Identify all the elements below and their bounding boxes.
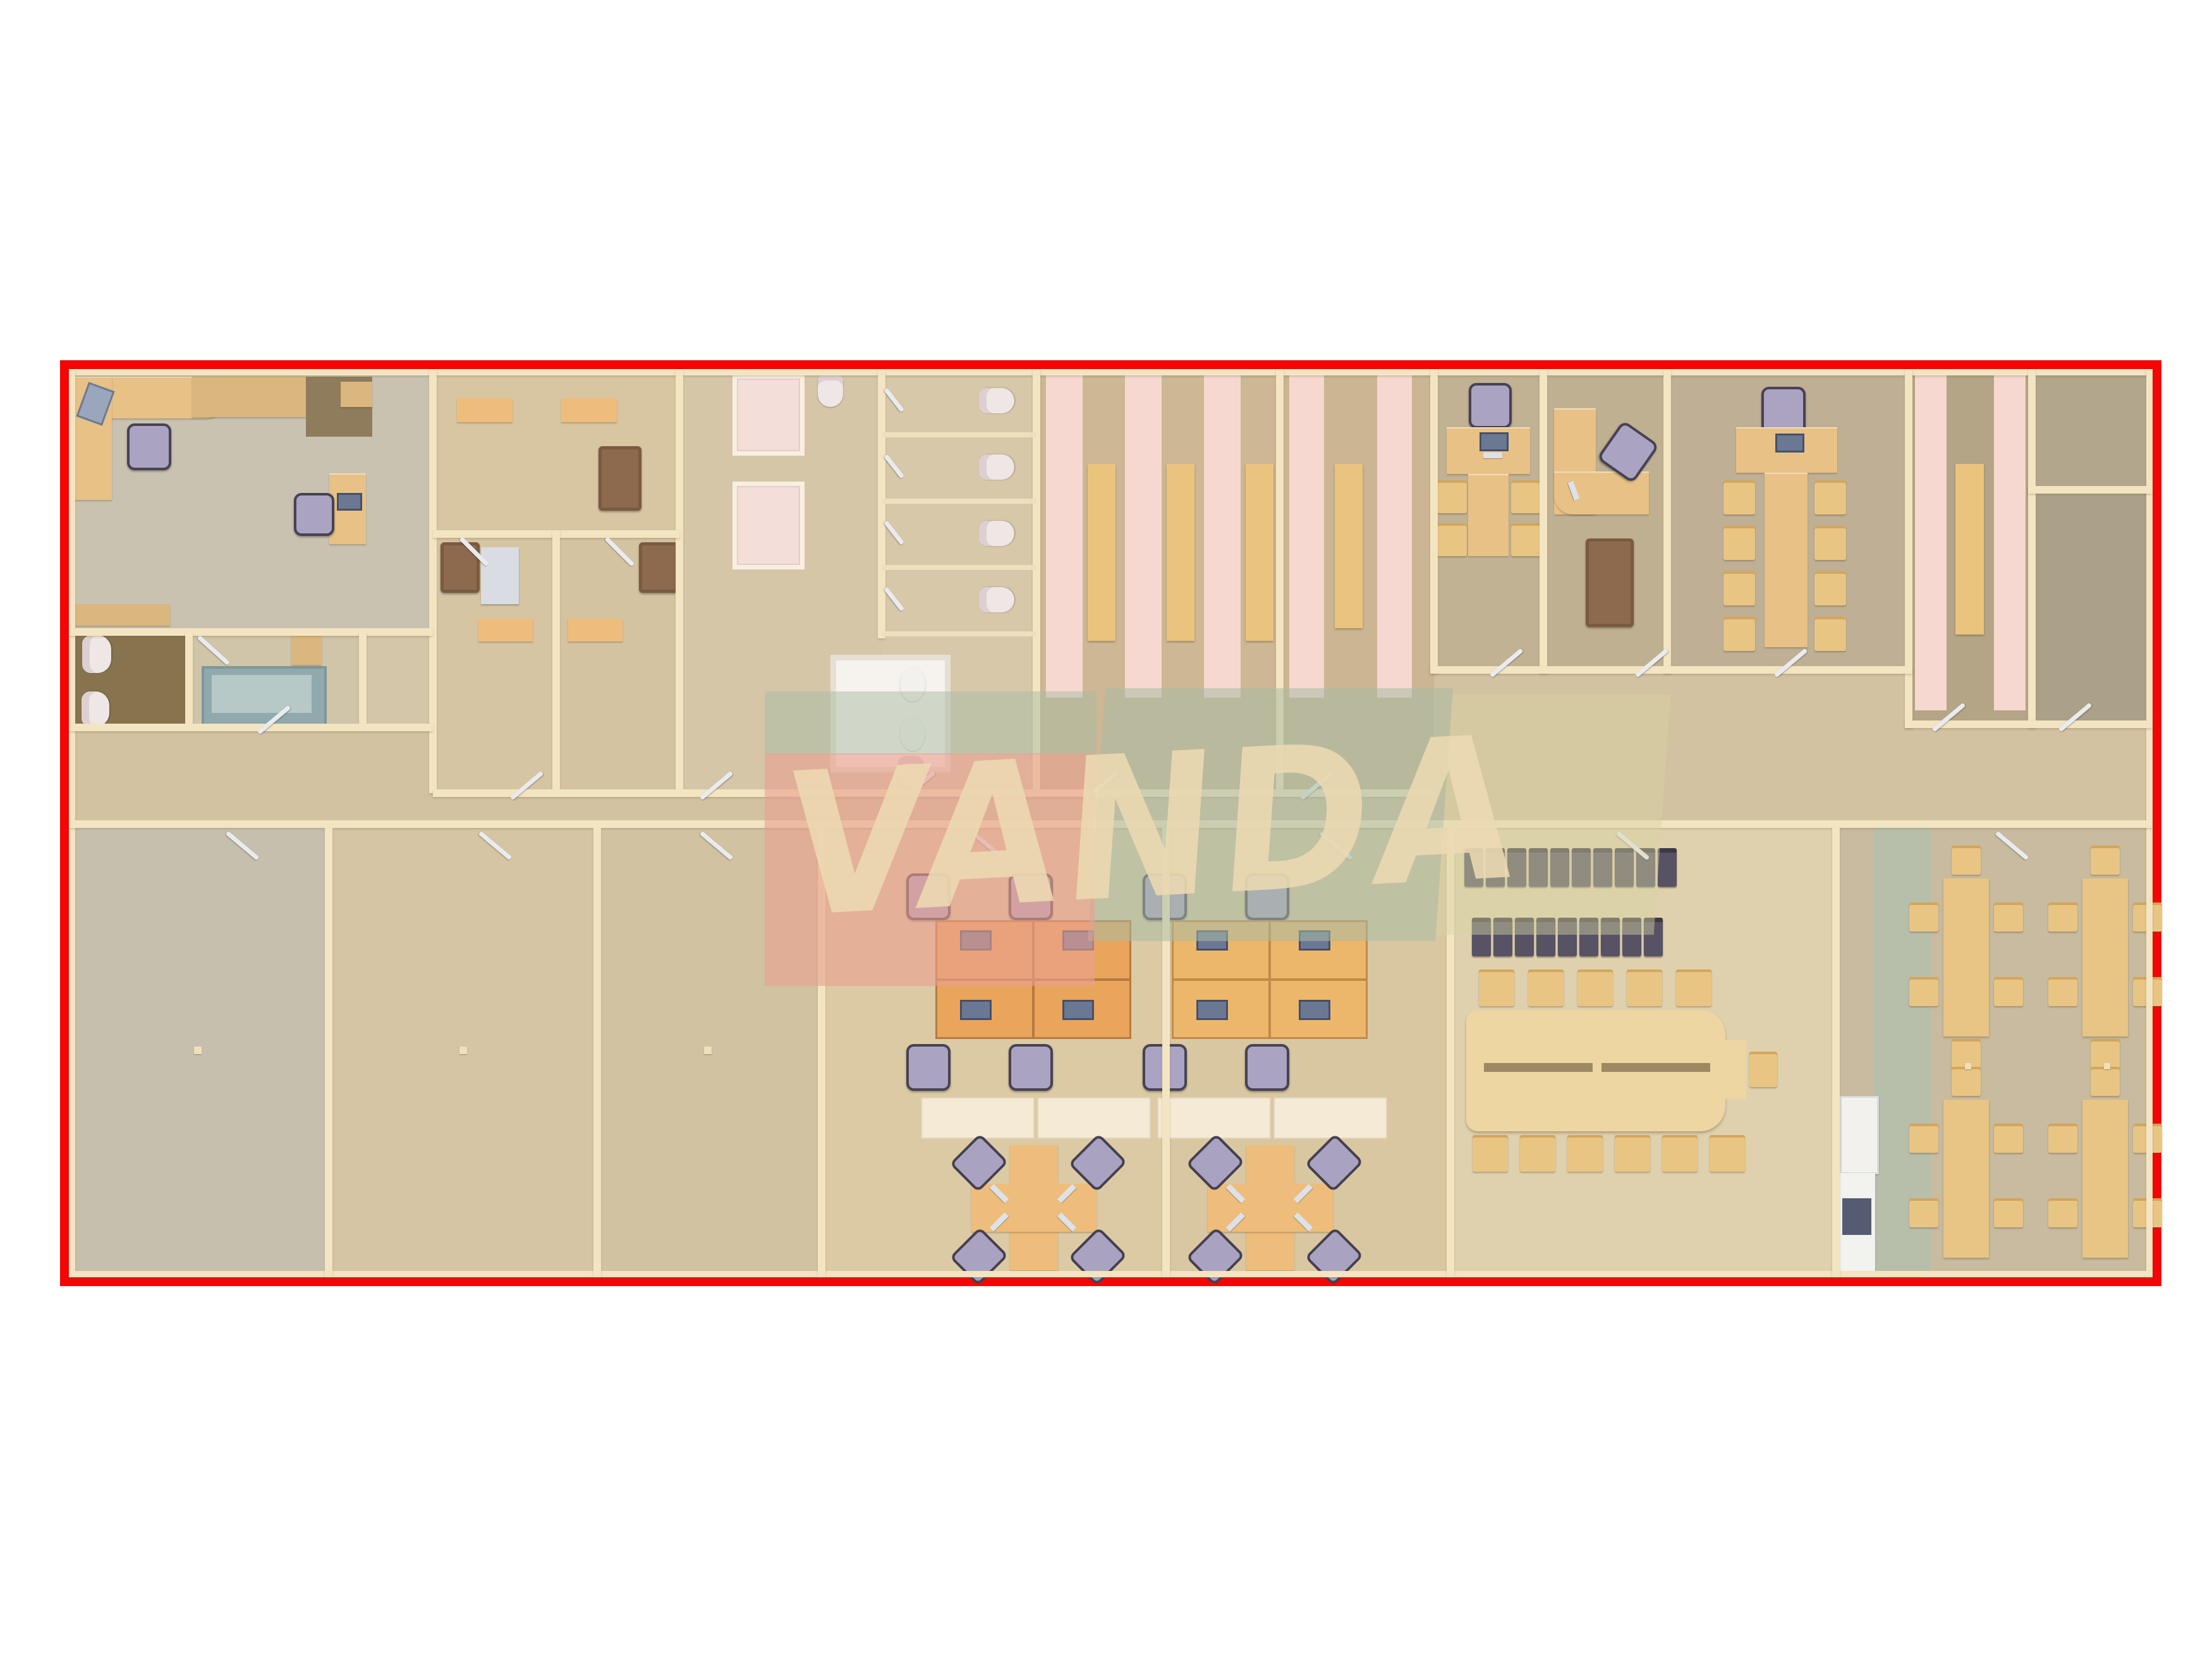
- oo1-credenza-1: [921, 1097, 1035, 1139]
- training-row1-chair: [1550, 848, 1569, 887]
- stall-divider-1: [882, 432, 1036, 437]
- conf-side-chair-l1: [1723, 480, 1755, 514]
- cafe-chair: [1909, 902, 1938, 932]
- shower-stall-1: [732, 374, 805, 456]
- training-table-chair-top: [1676, 969, 1711, 1006]
- cafe-chair: [2091, 1067, 2120, 1096]
- stall-divider-3: [882, 565, 1036, 570]
- utility-shelf: [291, 632, 322, 665]
- lounge-table-2: [561, 398, 617, 422]
- hall1-bench-1: [1088, 464, 1115, 641]
- hall1-mat-2: [1125, 369, 1162, 698]
- wall-b3: [818, 828, 825, 1277]
- training-table-chair-top: [1479, 969, 1514, 1006]
- hall1-mat-1: [1046, 369, 1083, 698]
- small-office-1-side-table: [481, 547, 519, 604]
- wall-h-suite-bottom: [69, 724, 433, 731]
- side-desk-chair: [294, 493, 334, 536]
- stall-toilet-3: [979, 521, 1014, 546]
- hall1-bench-2: [1167, 464, 1194, 641]
- hall2-mat-1: [1289, 369, 1324, 698]
- cafe-chair: [1909, 1198, 1938, 1227]
- wall-h-mid-bottom: [433, 789, 1434, 797]
- training-table-chair-bottom: [1567, 1135, 1603, 1172]
- training-row2-chair: [1472, 918, 1491, 956]
- wall-v-store: [359, 632, 367, 727]
- conf-side-chair-r4: [1814, 617, 1846, 651]
- conf-side-chair-r3: [1814, 571, 1846, 605]
- oo2-pinwheel-hbar: [1208, 1184, 1333, 1232]
- training-row2-chair: [1644, 918, 1663, 956]
- exec1-side-chair-1: [1437, 480, 1467, 513]
- wall-b5: [1447, 828, 1454, 1277]
- oo1-monitor-2: [1062, 930, 1094, 951]
- oo1-monitor-3: [960, 1000, 992, 1020]
- stall-toilet-1: [979, 388, 1014, 413]
- cafe-chair: [1994, 1124, 2023, 1153]
- training-row2-chair: [1493, 918, 1512, 956]
- oo1-monitor-4: [1062, 1000, 1094, 1020]
- training-row1-chair: [1529, 848, 1548, 887]
- conf-side-chair-l4: [1723, 617, 1755, 651]
- training-table-end-chair: [1749, 1052, 1777, 1087]
- oo2-monitor-3: [1196, 1000, 1228, 1020]
- kitchen-fridge: [1840, 1096, 1879, 1174]
- wall-v7: [1540, 369, 1547, 674]
- oo2-chair-bottom-2: [1245, 1044, 1289, 1091]
- shower-tray: [830, 655, 951, 772]
- cafe-table-1: [1943, 878, 1989, 1036]
- oo1-monitor-1: [960, 930, 992, 951]
- training-row1-chair: [1658, 848, 1677, 887]
- training-table-groove-2: [1601, 1063, 1710, 1072]
- shower-stall-2: [732, 482, 805, 569]
- stall-toilet-4: [979, 587, 1014, 612]
- conf-side-chair-r2: [1814, 526, 1846, 560]
- oo2-monitor-1: [1196, 930, 1228, 951]
- kitchen-appliance: [1842, 1198, 1871, 1235]
- training-row2-chair: [1601, 918, 1620, 956]
- training-row2-chair: [1536, 918, 1555, 956]
- wall-v5: [1276, 369, 1284, 793]
- utility-teal-table-inner: [212, 675, 312, 713]
- stall-divider-2: [882, 499, 1036, 504]
- stall-divider-4: [882, 631, 1036, 636]
- shower-room-toilet-icon: [818, 373, 843, 407]
- reception-wardrobe: [192, 377, 306, 417]
- cafe-chair: [2091, 846, 2120, 875]
- wall-h-reception: [69, 628, 433, 636]
- training-row1-chair: [1464, 848, 1483, 887]
- training-row1-chair: [1593, 848, 1612, 887]
- cafe-chair: [1994, 1198, 2023, 1227]
- exec1-side-chair-3: [1511, 480, 1541, 513]
- wall-v8: [1663, 369, 1671, 674]
- training-row2-chair: [1622, 918, 1641, 956]
- training-row1-chair: [1572, 848, 1591, 887]
- training-table-chair-top: [1627, 969, 1662, 1006]
- wall-b2: [593, 828, 601, 1277]
- training-row1-chair: [1615, 848, 1634, 887]
- wall-v6: [1430, 369, 1438, 674]
- wall-v2: [676, 369, 683, 793]
- wall-v10: [2028, 369, 2036, 728]
- wall-b4: [1162, 828, 1170, 1277]
- wall-v-wc: [185, 632, 193, 727]
- wc-bidet-icon: [82, 691, 109, 727]
- cafe-chair: [1952, 846, 1981, 875]
- stall-toilet-2: [979, 454, 1014, 480]
- training-table-chair-bottom: [1615, 1135, 1650, 1172]
- column-hall-1: [194, 1047, 202, 1054]
- training-row2-chair: [1579, 918, 1598, 956]
- exec1-side-chair-4: [1511, 523, 1541, 556]
- room-lounge: [433, 369, 679, 534]
- cafe-chair: [2048, 1198, 2077, 1227]
- conf-side-chair-r1: [1814, 480, 1846, 514]
- small-office-1-desk: [478, 619, 533, 641]
- training-table-step: [1723, 1040, 1746, 1098]
- lounge-sofa: [599, 446, 641, 511]
- wall-b6: [1832, 828, 1840, 1277]
- training-table-chair-bottom: [1473, 1135, 1508, 1172]
- hall3-mat-1: [1915, 369, 1947, 710]
- conference-monitor-icon: [1775, 434, 1804, 453]
- room-storeroom-upper: [2032, 369, 2153, 490]
- cafe-chair: [2048, 977, 2077, 1006]
- room-storeroom-lower: [2032, 490, 2153, 728]
- exec2-sofa: [1586, 538, 1634, 627]
- wall-b1: [325, 828, 332, 1277]
- wall-top: [69, 369, 2153, 375]
- training-table-groove-1: [1484, 1063, 1593, 1072]
- wall-h-storeroom: [2028, 486, 2153, 494]
- cafe-column-2: [2104, 1063, 2110, 1069]
- training-table-chair-bottom: [1520, 1135, 1555, 1172]
- hall3-bench: [1955, 464, 1984, 635]
- floor-plan-canvas: VANDA: [60, 360, 2161, 1286]
- oo2-credenza-2: [1273, 1097, 1387, 1139]
- cafe-table-2: [2082, 878, 2128, 1036]
- cafe-chair: [1952, 1067, 1981, 1096]
- room-storage: [363, 632, 433, 727]
- wall-v9: [1905, 369, 1912, 728]
- cafe-chair: [2048, 902, 2077, 932]
- training-row2-chair: [1515, 918, 1534, 956]
- hall2-mat-2: [1377, 369, 1412, 698]
- wall-bottom: [69, 1271, 2153, 1277]
- training-table-chair-top: [1528, 969, 1564, 1006]
- cafe-chair: [1909, 1124, 1938, 1153]
- cafe-table-3: [1943, 1100, 1989, 1258]
- closet-shelf: [341, 382, 372, 407]
- basin-1: [900, 667, 925, 702]
- oo2-monitor-2: [1299, 930, 1330, 951]
- side-desk-monitor-icon: [337, 493, 362, 511]
- exec1-side-chair-2: [1437, 523, 1467, 556]
- wall-h-corridor-bottom: [69, 820, 2153, 828]
- cafe-chair: [2048, 1124, 2077, 1153]
- conference-head-chair: [1761, 387, 1806, 434]
- reception-chair: [127, 423, 171, 470]
- column-hall-2: [459, 1047, 467, 1054]
- oo1-chair-top-2: [1009, 873, 1053, 920]
- hall1-mat-3: [1204, 369, 1241, 698]
- cafe-chair: [1994, 902, 2023, 932]
- hall3-mat-2: [1994, 369, 2026, 710]
- oo1-chair-top-1: [906, 873, 951, 920]
- training-row1-chair: [1507, 848, 1526, 887]
- training-table-chair-top: [1577, 969, 1613, 1006]
- cafe-column-1: [1965, 1063, 1971, 1069]
- training-table-chair-bottom: [1710, 1135, 1745, 1172]
- cafe-chair: [1909, 977, 1938, 1006]
- basin-2: [900, 717, 925, 751]
- oo1-pinwheel-hbar: [971, 1184, 1097, 1232]
- wc-toilet-icon: [82, 635, 111, 673]
- oo2-credenza-1: [1157, 1097, 1271, 1139]
- hall1-bench-3: [1246, 464, 1273, 641]
- oo2-chair-top-2: [1245, 873, 1289, 920]
- small-office-2-armchair: [639, 542, 678, 593]
- exec1-desk-stem: [1468, 474, 1509, 556]
- small-office-2-desk: [568, 619, 623, 641]
- training-row2-chair: [1558, 918, 1577, 956]
- lounge-table-1: [457, 398, 513, 422]
- conference-table-stem: [1765, 473, 1808, 647]
- cafe-chair: [1994, 977, 2023, 1006]
- exec1-keyboard-icon: [1483, 453, 1502, 458]
- hall2-bench: [1335, 464, 1363, 628]
- conf-side-chair-l2: [1723, 526, 1755, 560]
- column-hall-3: [704, 1047, 712, 1054]
- oo2-monitor-4: [1299, 1000, 1330, 1020]
- oo1-credenza-2: [1037, 1097, 1151, 1139]
- wall-v3: [878, 369, 885, 638]
- wall-v-smalloffices: [552, 530, 560, 793]
- oo1-chair-bottom-1: [906, 1044, 951, 1091]
- exec1-chair: [1469, 383, 1512, 428]
- oo1-chair-bottom-2: [1009, 1044, 1053, 1091]
- conf-side-chair-l3: [1723, 571, 1755, 605]
- reception-low-cabinet: [75, 604, 170, 626]
- training-row1-chair: [1486, 848, 1505, 887]
- exec1-monitor-icon: [1480, 432, 1509, 451]
- training-table-chair-bottom: [1662, 1135, 1698, 1172]
- cafe-table-4: [2082, 1100, 2128, 1258]
